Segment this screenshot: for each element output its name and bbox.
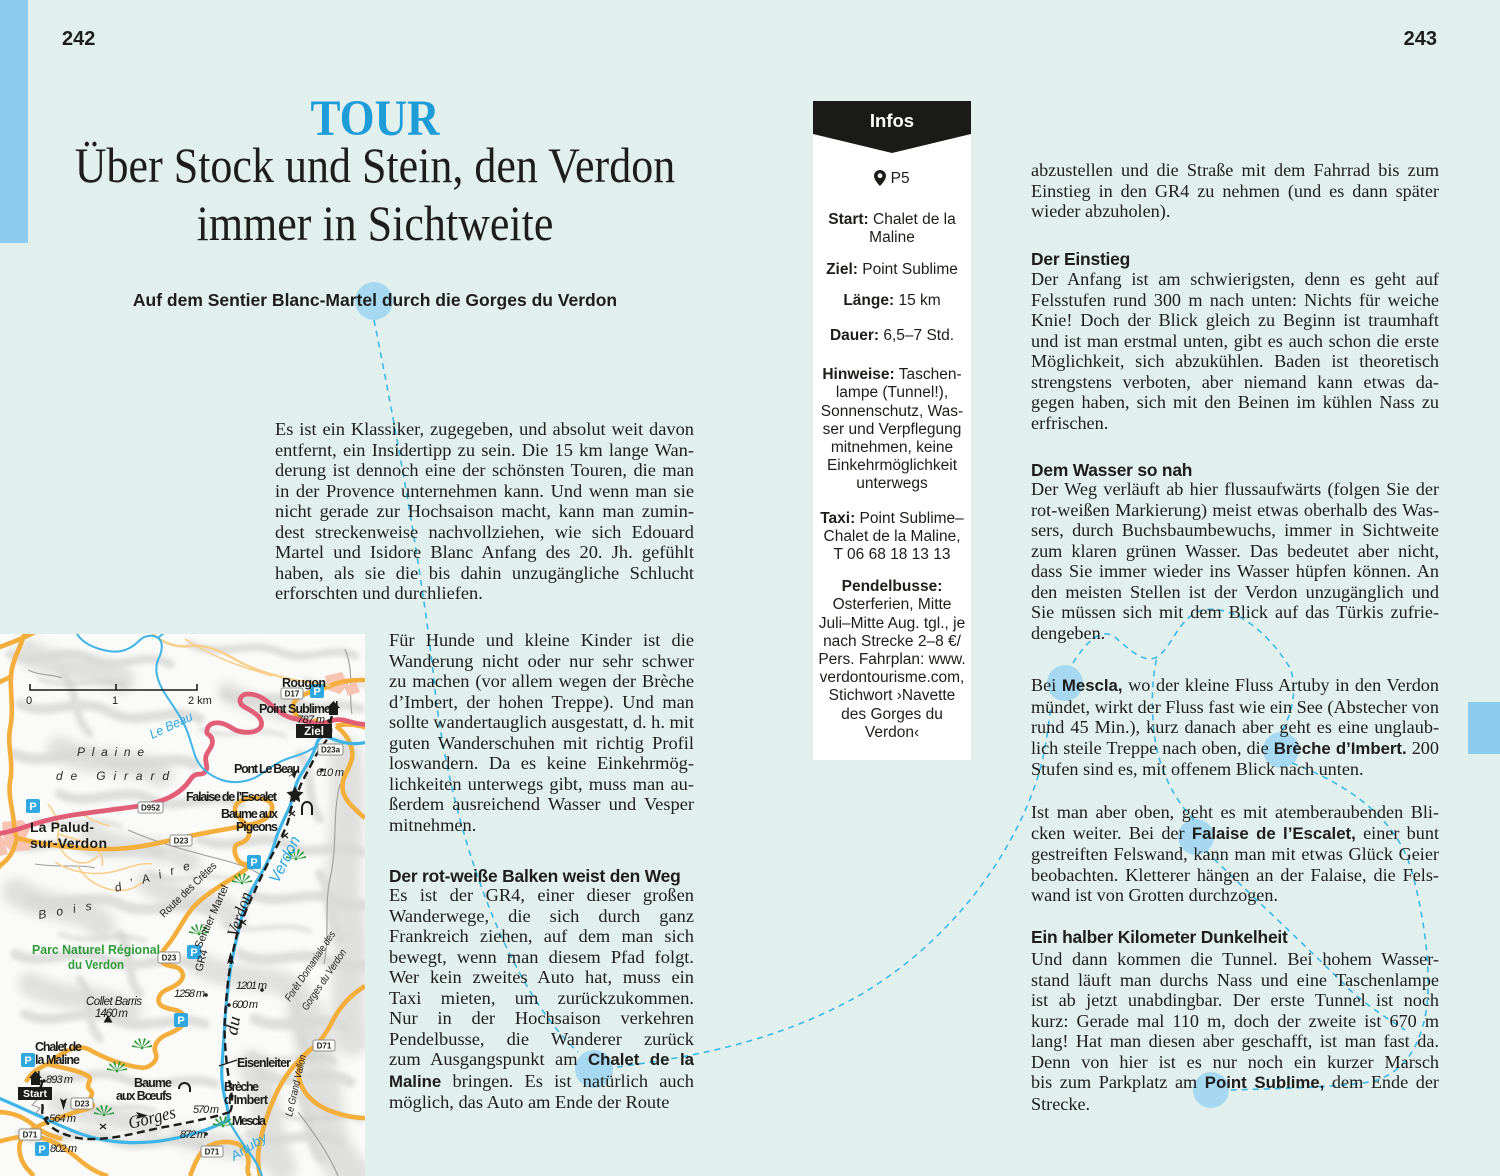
svg-text:D23: D23 [162,954,177,963]
svg-text:787 m: 787 m [297,714,325,726]
svg-text:D71: D71 [23,1131,38,1140]
svg-text:P: P [177,1015,184,1027]
svg-text:P: P [29,801,36,813]
svg-text:Chalet de: Chalet de [35,1040,82,1054]
svg-text:d’Imbert: d’Imbert [224,1093,269,1107]
svg-text:802 m: 802 m [50,1143,77,1155]
svg-text:564 m: 564 m [49,1113,76,1125]
svg-text:Ziel: Ziel [304,726,324,738]
svg-text:aux Bœufs: aux Bœufs [116,1089,172,1103]
svg-text:Baume: Baume [134,1076,172,1090]
svg-text:P: P [250,857,257,869]
svg-text:Collet Barris: Collet Barris [86,996,142,1008]
svg-text:1201 m: 1201 m [236,980,267,992]
svg-text:Parc Naturel Régional: Parc Naturel Régional [32,942,160,957]
svg-text:P: P [38,1144,45,1156]
svg-text:872 m: 872 m [180,1129,206,1141]
svg-text:du Verdon: du Verdon [68,957,124,972]
svg-text:Falaise de l’Escalet: Falaise de l’Escalet [186,790,278,804]
svg-text:D71: D71 [205,1148,220,1157]
svg-text:Baume aux: Baume aux [221,807,278,821]
svg-text:Rougon: Rougon [282,676,326,690]
svg-text:du: du [221,1015,244,1037]
svg-text:D23: D23 [174,837,189,846]
svg-text:610 m: 610 m [316,767,344,779]
svg-text:D71: D71 [317,1042,332,1051]
svg-text:1460 m: 1460 m [95,1008,128,1020]
svg-text:D17: D17 [285,690,300,699]
svg-text:Eisenleiter: Eisenleiter [237,1056,291,1070]
svg-text:sur-Verdon: sur-Verdon [30,835,107,851]
svg-text:la Maline: la Maline [35,1053,80,1067]
svg-text:Brèche: Brèche [224,1080,259,1094]
svg-text:Start: Start [23,1088,47,1100]
svg-text:D23a: D23a [321,746,341,755]
svg-text:600 m: 600 m [232,999,258,1011]
svg-text:Mescla: Mescla [232,1114,267,1128]
svg-text:P: P [24,1055,31,1067]
svg-text:D23: D23 [75,1100,90,1109]
svg-text:La Palud-: La Palud- [30,819,94,835]
svg-text:1258 m: 1258 m [174,988,205,1000]
svg-text:D952: D952 [141,804,161,813]
svg-text:de Girard: de Girard [56,769,169,783]
svg-text:893 m: 893 m [46,1074,73,1086]
svg-text:2 km: 2 km [188,695,212,707]
svg-text:0: 0 [26,695,32,707]
svg-text:Pont Le Beau: Pont Le Beau [234,762,300,776]
svg-text:570 m: 570 m [193,1104,219,1116]
svg-text:1: 1 [112,695,118,707]
svg-text:Pigeons: Pigeons [236,820,278,834]
